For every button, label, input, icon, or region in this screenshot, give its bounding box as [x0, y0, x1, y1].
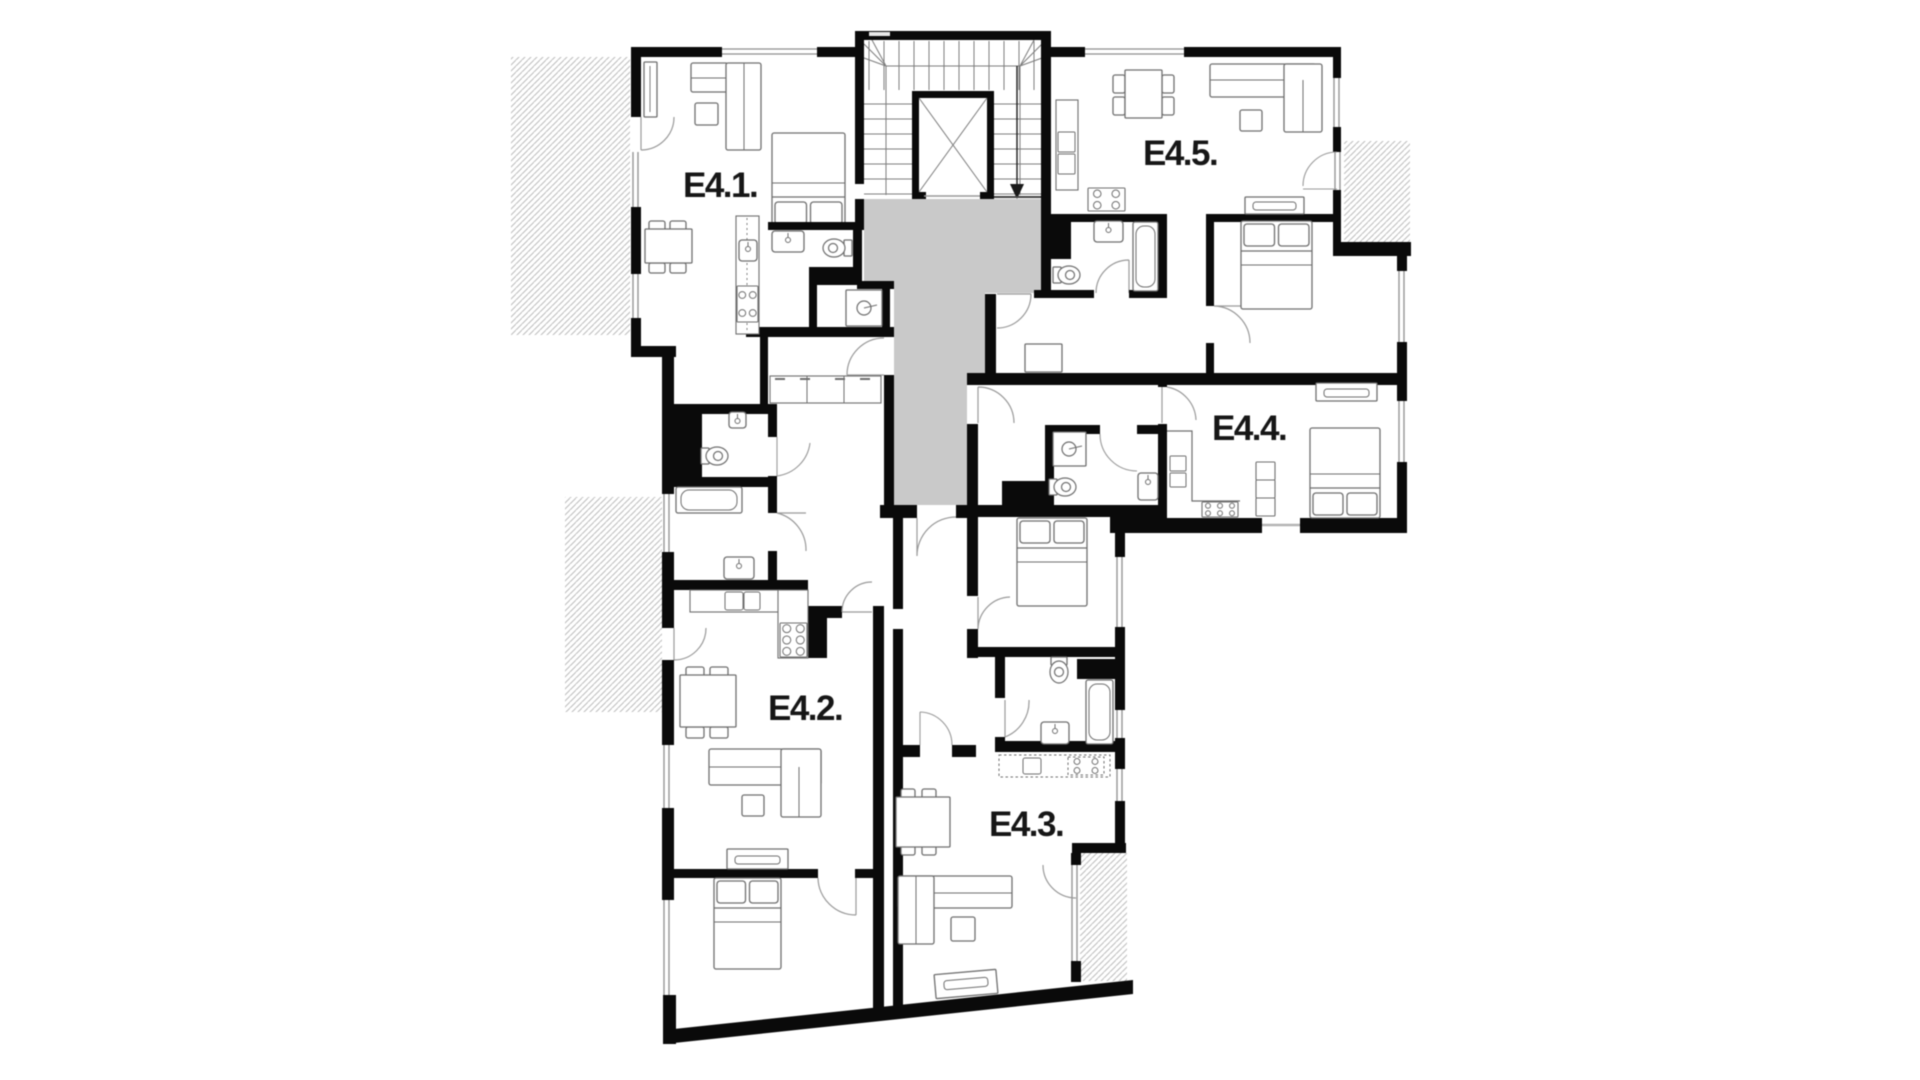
svg-text:E4.4.: E4.4. — [1212, 409, 1286, 448]
svg-text:E4.3.: E4.3. — [989, 805, 1063, 844]
svg-text:E4.2.: E4.2. — [768, 689, 842, 728]
svg-text:E4.1.: E4.1. — [683, 166, 757, 205]
svg-text:E4.5.: E4.5. — [1143, 134, 1217, 173]
